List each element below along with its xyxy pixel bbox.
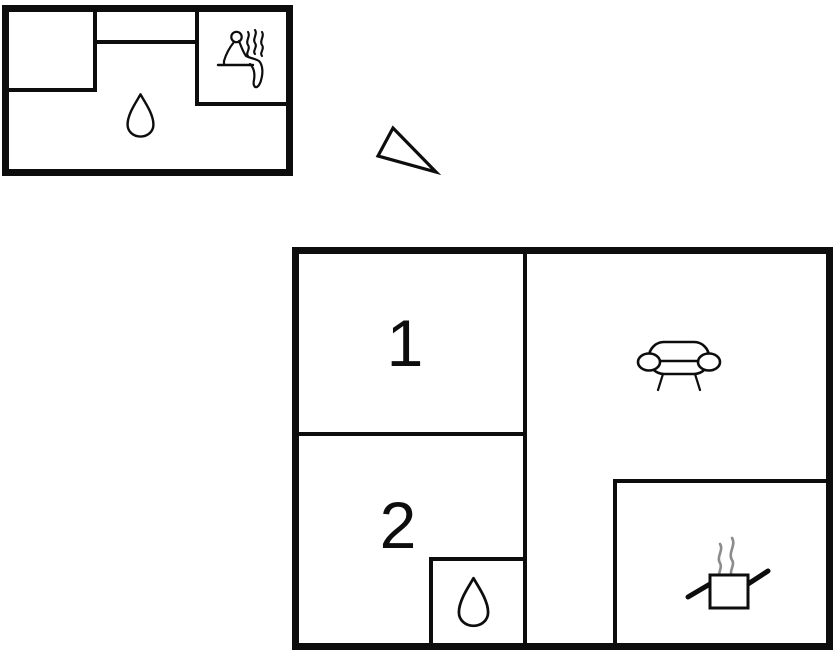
steam-icon (247, 30, 263, 56)
water-drop-icon (456, 575, 491, 628)
wall (195, 5, 199, 106)
room-1-label: 1 (375, 310, 435, 376)
room-2-label: 2 (368, 492, 428, 558)
sauna-person-icon (216, 28, 282, 90)
floor-plan-canvas: 1 2 (0, 0, 834, 652)
wall (429, 557, 433, 650)
wall (93, 5, 97, 92)
water-drop-icon (125, 88, 156, 142)
wall (292, 432, 527, 436)
wall (613, 479, 617, 650)
wall (613, 479, 833, 483)
wall (95, 40, 199, 44)
steam-icon (719, 538, 733, 577)
sofa-icon (636, 336, 722, 394)
cooking-pot-icon (672, 538, 772, 622)
wall (523, 247, 527, 650)
wall (2, 88, 97, 92)
north-arrow-icon (372, 120, 442, 178)
wall (429, 557, 527, 561)
wall (195, 102, 293, 106)
